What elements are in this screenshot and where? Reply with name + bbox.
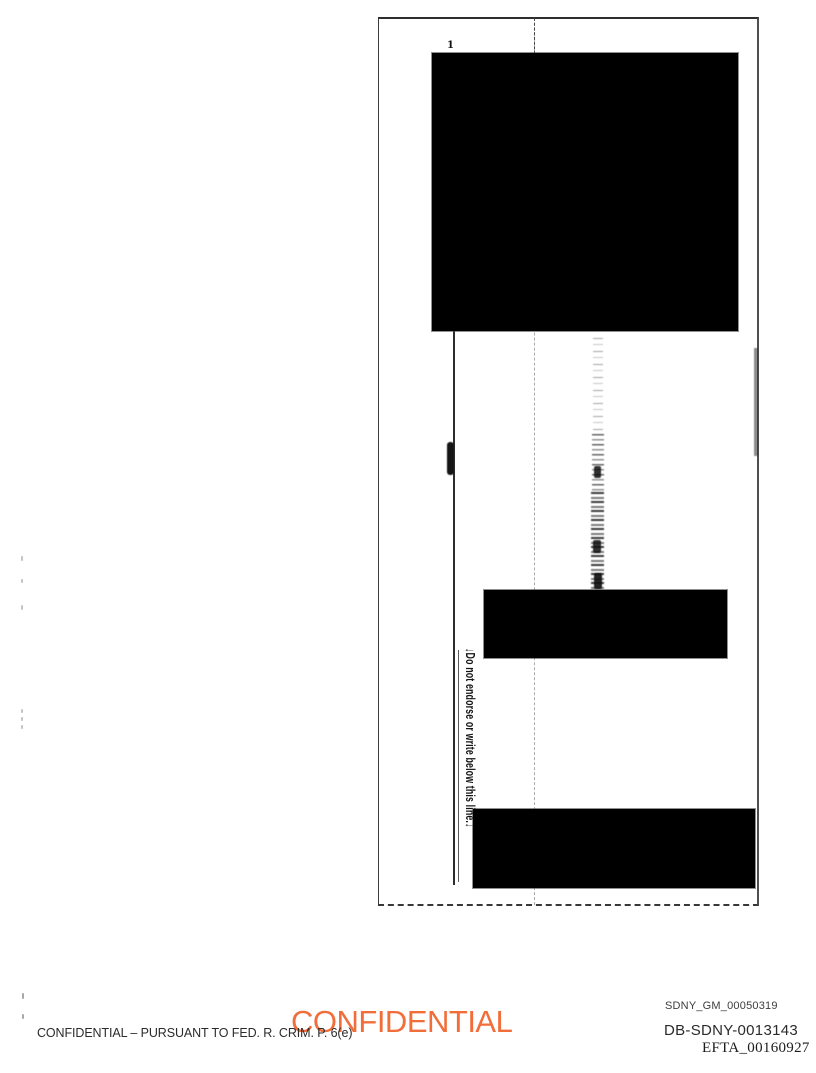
redaction-box-top (432, 53, 738, 331)
bates-number-efta: EFTA_00160927 (702, 1040, 810, 1057)
vertical-fold-line-top-segment (534, 18, 535, 54)
scanned-document-page: 1 ↓Do not endorse or write below this li… (0, 0, 816, 1073)
scan-noise-speck (22, 993, 24, 999)
scan-noise-speck (22, 1014, 24, 1019)
grand-jury-confidentiality-line: CONFIDENTIAL – PURSUANT TO FED. R. CRIM.… (37, 1026, 352, 1040)
smudge-blob (594, 573, 602, 589)
bates-number-sdny-gm: SDNY_GM_00050319 (665, 1000, 778, 1012)
scan-noise-speck (21, 579, 23, 583)
tick-mark: 1 (447, 40, 454, 51)
scan-noise-speck (21, 709, 23, 713)
scan-noise-speck (21, 605, 23, 610)
redaction-box-bottom (473, 809, 755, 888)
redaction-box-middle (484, 590, 727, 658)
endorsement-smudge-segment (592, 434, 604, 492)
scan-noise-speck (21, 717, 23, 721)
bates-number-db-sdny: DB-SDNY-0013143 (664, 1022, 798, 1039)
smudge-blob (594, 466, 601, 478)
endorsement-rule-line-secondary (458, 650, 459, 882)
endorsement-smudge-segment (593, 338, 603, 434)
ink-blob (447, 442, 454, 475)
scan-noise-speck (21, 725, 23, 729)
smudge-blob (593, 540, 601, 553)
endorsement-rule-line (453, 331, 455, 885)
scan-border-artifact (754, 348, 758, 456)
scan-noise-speck (21, 556, 23, 561)
